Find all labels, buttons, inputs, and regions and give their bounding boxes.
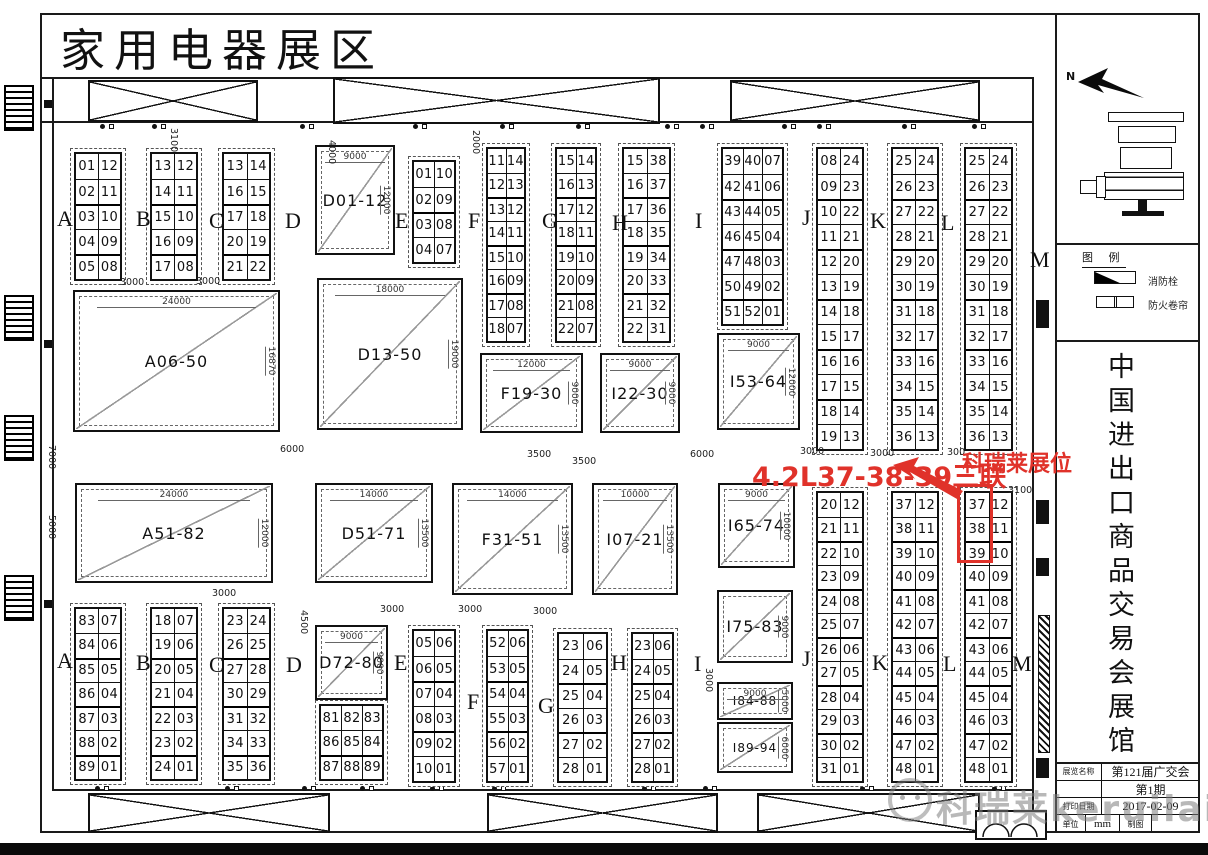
booth-cell: 09 bbox=[818, 175, 840, 199]
booth-row: 868584 bbox=[321, 730, 382, 754]
fire-hydrant-marker bbox=[302, 786, 307, 791]
booth-row: 0506 bbox=[414, 631, 454, 656]
booth-cell: 03 bbox=[989, 710, 1012, 733]
booth-cell: 01 bbox=[915, 758, 937, 781]
north-label: N bbox=[1066, 70, 1075, 83]
booth-cell: 01 bbox=[508, 757, 528, 781]
fire-hydrant-marker bbox=[225, 786, 230, 791]
booth-cell: 09 bbox=[506, 270, 524, 293]
booth-cell: 42 bbox=[966, 614, 989, 637]
booth-cell: 05 bbox=[174, 660, 196, 682]
dimension-label: 4500 bbox=[298, 610, 309, 634]
dimension-label: 12000 bbox=[258, 519, 269, 548]
booth-cell: 07 bbox=[506, 318, 524, 341]
booth-cell: 01 bbox=[414, 162, 434, 187]
booth-grid: 3712381139104009410842074306440545044603… bbox=[891, 491, 939, 783]
booth-cell: 21 bbox=[624, 295, 647, 317]
booth-cell: 46 bbox=[723, 225, 743, 249]
booth-row: 0110 bbox=[414, 162, 454, 187]
booth-row: 1708 bbox=[488, 293, 524, 317]
booth-cell: 03 bbox=[653, 709, 673, 733]
booth-cell: 01 bbox=[174, 757, 196, 779]
booth-row: 0605 bbox=[414, 656, 454, 681]
booth-row: 2903 bbox=[818, 709, 862, 733]
booth-cell: 48 bbox=[743, 251, 763, 274]
booth-row: 2705 bbox=[818, 661, 862, 685]
booth-grid: 230624052504260327022801 bbox=[557, 632, 608, 783]
fire-hydrant-marker bbox=[972, 124, 977, 129]
booth-cell: 20 bbox=[557, 270, 576, 293]
booth-cell: 22 bbox=[989, 201, 1012, 224]
booth-row: 1314 bbox=[224, 154, 269, 179]
aisle-letter: C bbox=[209, 652, 224, 678]
wall-marker bbox=[869, 786, 874, 791]
booth-cell: 14 bbox=[247, 154, 270, 179]
booth-cell: 34 bbox=[893, 375, 915, 399]
booth-cell: 20 bbox=[840, 251, 862, 274]
booth-cell: 10 bbox=[840, 543, 862, 565]
dimension-label: 24000 bbox=[98, 490, 249, 501]
booth-cell: 13 bbox=[818, 275, 840, 299]
booth-cell: 26 bbox=[818, 639, 840, 661]
aisle-letter: C bbox=[209, 208, 224, 234]
wall-marker bbox=[309, 124, 314, 129]
booth-row: 4009 bbox=[893, 565, 937, 589]
booth-row: 1708 bbox=[152, 254, 196, 279]
booth-row: 2108 bbox=[557, 293, 595, 317]
booth-grid: 520653055404550356025701 bbox=[486, 629, 529, 783]
booth-row: 1615 bbox=[224, 179, 269, 204]
booth-cell: 44 bbox=[743, 201, 763, 224]
booth-row: 1510 bbox=[488, 245, 524, 269]
wall-marker bbox=[585, 124, 590, 129]
booth-cell: 16 bbox=[818, 351, 840, 374]
aisle-letter: G bbox=[538, 693, 554, 719]
truss-box bbox=[88, 793, 330, 833]
booth-cell: 24 bbox=[818, 591, 840, 613]
booth-grid: 0824092310221121122013191418151716161715… bbox=[816, 147, 864, 451]
booth-cell: 13 bbox=[506, 174, 524, 197]
booth-cell: 02 bbox=[762, 275, 782, 299]
dimension-label: 10000 bbox=[603, 490, 667, 501]
booth-cell: 05 bbox=[989, 662, 1012, 685]
booth-cell: 10 bbox=[98, 206, 120, 229]
booth-cell: 38 bbox=[893, 518, 915, 541]
booth-row: 8604 bbox=[76, 682, 120, 706]
booth-cell: 47 bbox=[966, 735, 989, 757]
booth-cell: 12 bbox=[576, 199, 595, 221]
booth-cell: 24 bbox=[915, 149, 937, 174]
booth-column: 3712381139104009410842074306440545044603… bbox=[887, 487, 943, 787]
booth-row: 1514 bbox=[557, 149, 595, 173]
booth-cell: 07 bbox=[174, 609, 196, 633]
booth-cell: 25 bbox=[633, 685, 653, 708]
booth-cell: 44 bbox=[966, 662, 989, 685]
booth-row: 3217 bbox=[893, 324, 937, 349]
dimension-label: 3000 bbox=[533, 606, 557, 617]
booth-cell: 02 bbox=[840, 735, 862, 757]
booth-cell: 18 bbox=[488, 318, 506, 341]
booth-row: 0310 bbox=[76, 204, 120, 229]
booth-cell: 05 bbox=[653, 660, 673, 684]
wall-symbol bbox=[44, 100, 52, 108]
booth-cell: 04 bbox=[174, 683, 196, 706]
booth-cell: 40 bbox=[966, 566, 989, 589]
booth-grid: 01120211031004090508 bbox=[74, 152, 122, 281]
booth-row: 1807 bbox=[152, 609, 196, 633]
booth-cell: 27 bbox=[559, 734, 583, 757]
dimension-label: 2000 bbox=[470, 130, 481, 154]
booth-cell: 46 bbox=[893, 710, 915, 733]
booth-cell: 12 bbox=[840, 493, 862, 517]
fire-hydrant-marker bbox=[300, 124, 305, 129]
booth-row: 1718 bbox=[224, 204, 269, 229]
booth-cell: 07 bbox=[414, 683, 434, 706]
booth-cell: 19 bbox=[840, 275, 862, 299]
booth-row: 3118 bbox=[966, 299, 1011, 324]
dimension-label: 5000 bbox=[778, 690, 789, 713]
booth-row: 4108 bbox=[966, 589, 1011, 613]
booth-cell: 20 bbox=[152, 660, 174, 682]
aisle-letter: A bbox=[57, 206, 73, 232]
booth-cell: 21 bbox=[818, 518, 840, 541]
booth-cell: 10 bbox=[915, 543, 937, 565]
wall-symbol bbox=[1036, 558, 1049, 576]
booth-cell: 24 bbox=[559, 660, 583, 684]
booth-cell: 14 bbox=[915, 401, 937, 424]
booth-row: 2306 bbox=[633, 634, 672, 659]
booth-cell: 24 bbox=[989, 149, 1012, 174]
booth-cell: 23 bbox=[915, 175, 937, 199]
booth-cell: 36 bbox=[893, 425, 915, 449]
booth-cell: 32 bbox=[247, 708, 270, 730]
booth-cell: 21 bbox=[915, 225, 937, 249]
booth-row: 2019 bbox=[224, 229, 269, 254]
booth-column: 520653055404550356025701 bbox=[482, 625, 533, 787]
booth-cell: 03 bbox=[174, 708, 196, 730]
booth-row: 0112 bbox=[76, 154, 120, 179]
booth-column: 11141213131214111510160917081807 bbox=[482, 143, 530, 347]
booth-row: 474803 bbox=[723, 249, 782, 274]
booth-cell: 01 bbox=[653, 758, 673, 782]
aisle-letter: B bbox=[136, 206, 151, 232]
dimension-label: 13500 bbox=[418, 519, 429, 548]
booth-row: 4009 bbox=[966, 565, 1011, 589]
booth-cell: 21 bbox=[840, 225, 862, 249]
booth-row: 2324 bbox=[224, 609, 269, 633]
booth-row: 0211 bbox=[76, 179, 120, 204]
booth-cell: 19 bbox=[557, 247, 576, 269]
booth-row: 464504 bbox=[723, 224, 782, 249]
booth-cell: 14 bbox=[152, 180, 174, 204]
booth-cell: 43 bbox=[723, 201, 743, 224]
fire-hydrant-marker bbox=[500, 124, 505, 129]
booth-cell: 28 bbox=[966, 225, 989, 249]
booth-row: 4306 bbox=[893, 637, 937, 661]
booth-cell: 02 bbox=[98, 731, 120, 754]
wall-marker bbox=[369, 786, 374, 791]
booth-grid: 050606050704080309021001 bbox=[412, 629, 456, 783]
booth-cell: 19 bbox=[624, 247, 647, 269]
booth-cell: 11 bbox=[915, 518, 937, 541]
truss-box bbox=[88, 80, 258, 122]
booth-row: 4801 bbox=[966, 757, 1011, 781]
fire-hydrant-marker bbox=[100, 124, 105, 129]
booth-cell: 18 bbox=[152, 609, 174, 633]
booth-cell: 08 bbox=[818, 149, 840, 174]
booth-cell: 29 bbox=[966, 251, 989, 274]
booth-row: 2920 bbox=[893, 249, 937, 274]
booth-cell: 27 bbox=[224, 660, 247, 682]
wall-marker bbox=[674, 124, 679, 129]
legend-title: 图 例 bbox=[1082, 249, 1126, 268]
dimension-label: 13500 bbox=[558, 525, 569, 554]
booth-row: 4405 bbox=[893, 661, 937, 685]
booth-row: 1418 bbox=[818, 299, 862, 324]
booth-row: 8802 bbox=[76, 730, 120, 754]
aisle-letter: M bbox=[1030, 247, 1050, 273]
wall-line bbox=[40, 13, 1200, 15]
booth-cell: 11 bbox=[840, 518, 862, 541]
booth-cell: 26 bbox=[966, 175, 989, 199]
booth-row: 1609 bbox=[488, 269, 524, 293]
truss-box bbox=[333, 77, 660, 124]
booth-cell: 25 bbox=[966, 149, 989, 174]
dimension-label: 19000 bbox=[448, 340, 459, 369]
booth-cell: 06 bbox=[508, 631, 528, 656]
booth-cell: 06 bbox=[840, 639, 862, 661]
fire-hydrant-marker bbox=[152, 124, 157, 129]
booth-cell: 31 bbox=[966, 301, 989, 324]
fire-hydrant-marker bbox=[817, 124, 822, 129]
booth-cell: 17 bbox=[224, 206, 247, 229]
booth-cell: 02 bbox=[508, 733, 528, 756]
booth-row: 1910 bbox=[557, 245, 595, 269]
booth-row: 2104 bbox=[152, 682, 196, 706]
booth-grid: 11141213131214111510160917081807 bbox=[486, 147, 526, 343]
booth-cell: 09 bbox=[414, 733, 434, 756]
booth-row: 3536 bbox=[224, 755, 269, 779]
booth-cell: 04 bbox=[98, 683, 120, 706]
booth-column: 01120211031004090508 bbox=[70, 148, 126, 285]
booth-cell: 26 bbox=[559, 709, 583, 733]
booth-row: 1510 bbox=[152, 204, 196, 229]
booth-row: 424106 bbox=[723, 174, 782, 199]
exhibit-block: I07-211000013500 bbox=[592, 483, 678, 595]
booth-cell: 88 bbox=[76, 731, 98, 754]
booth-row: 2728 bbox=[224, 658, 269, 682]
wall-line bbox=[40, 13, 42, 833]
dimension-label: 6000 bbox=[690, 449, 714, 460]
booth-row: 2401 bbox=[152, 755, 196, 779]
aisle-letter: D bbox=[286, 652, 302, 678]
booth-cell: 23 bbox=[224, 609, 247, 633]
exhibit-block: D51-711400013500 bbox=[315, 483, 433, 583]
booth-row: 1538 bbox=[624, 149, 669, 173]
booth-cell: 03 bbox=[840, 710, 862, 733]
booth-cell: 15 bbox=[557, 149, 576, 173]
booth-cell: 07 bbox=[989, 614, 1012, 637]
booth-row: 2623 bbox=[893, 174, 937, 199]
booth-cell: 17 bbox=[818, 375, 840, 399]
booth-row: 3910 bbox=[893, 541, 937, 565]
booth-cell: 09 bbox=[434, 188, 454, 212]
dimension-label: 24000 bbox=[97, 297, 255, 308]
aisle-letter: K bbox=[870, 208, 886, 234]
booth-column: 13141615171820192122 bbox=[218, 148, 275, 285]
booth-cell: 46 bbox=[966, 710, 989, 733]
booth-row: 3029 bbox=[224, 682, 269, 706]
booth-grid: 15381637173618351934203321322231 bbox=[622, 147, 671, 343]
booth-cell: 14 bbox=[576, 149, 595, 173]
dimension-label: 3100 bbox=[1008, 485, 1032, 496]
dimension-label: 6000 bbox=[778, 736, 789, 759]
booth-grid: 13121411151016091708 bbox=[150, 152, 198, 281]
fire-hydrant-marker bbox=[782, 124, 787, 129]
booth-cell: 06 bbox=[915, 639, 937, 661]
booth-cell: 19 bbox=[152, 634, 174, 657]
wall-marker bbox=[712, 786, 717, 791]
booth-cell: 10 bbox=[506, 247, 524, 269]
aisle-letter: D bbox=[285, 208, 301, 234]
booth-cell: 07 bbox=[576, 318, 595, 341]
dimension-label: 13500 bbox=[663, 525, 674, 554]
booth-cell: 26 bbox=[633, 709, 653, 733]
booth-cell: 06 bbox=[989, 639, 1012, 661]
booth-row: 2309 bbox=[818, 565, 862, 589]
booth-cell: 20 bbox=[915, 251, 937, 274]
booth-cell: 07 bbox=[762, 149, 782, 174]
wall-marker bbox=[709, 124, 714, 129]
booth-cell: 28 bbox=[559, 758, 583, 782]
booth-cell: 05 bbox=[583, 660, 607, 684]
booth-row: 1715 bbox=[818, 374, 862, 399]
booth-row: 2210 bbox=[818, 541, 862, 565]
booth-row: 2203 bbox=[152, 706, 196, 730]
booth-cell: 16 bbox=[915, 351, 937, 374]
booth-cell: 09 bbox=[989, 566, 1012, 589]
booth-cell: 10 bbox=[818, 201, 840, 224]
booth-cell: 02 bbox=[915, 735, 937, 757]
booth-cell: 04 bbox=[76, 230, 98, 254]
booth-cell: 28 bbox=[893, 225, 915, 249]
booth-column: 2324262527283029313234333536 bbox=[218, 603, 275, 785]
booth-column: 230624052504260327022801 bbox=[553, 628, 612, 787]
booth-row: 4603 bbox=[893, 709, 937, 733]
aisle-letter: J bbox=[802, 646, 811, 672]
booth-row: 1114 bbox=[488, 149, 524, 173]
booth-cell: 06 bbox=[414, 657, 434, 681]
fire-shutter-icon bbox=[1096, 296, 1134, 308]
booth-cell: 18 bbox=[818, 401, 840, 424]
booth-row: 1906 bbox=[152, 633, 196, 657]
booth-cell: 09 bbox=[174, 230, 196, 254]
booth-cell: 03 bbox=[762, 251, 782, 274]
booth-cell: 35 bbox=[647, 222, 670, 245]
booth-row: 8505 bbox=[76, 658, 120, 682]
wall-structure bbox=[4, 85, 34, 131]
booth-cell: 34 bbox=[224, 731, 247, 754]
booth-cell: 30 bbox=[818, 735, 840, 757]
booth-row: 1811 bbox=[557, 221, 595, 245]
booth-cell: 09 bbox=[576, 270, 595, 293]
booth-row: 5404 bbox=[488, 681, 527, 706]
exhibit-block: F19-30120009000 bbox=[480, 353, 583, 433]
booth-cell: 30 bbox=[224, 683, 247, 706]
booth-row: 8901 bbox=[76, 755, 120, 779]
booth-grid: 2524262327222821292030193118321733163415… bbox=[891, 147, 939, 451]
booth-cell: 56 bbox=[488, 733, 508, 756]
booth-row: 3514 bbox=[966, 399, 1011, 424]
booth-cell: 06 bbox=[98, 634, 120, 657]
north-arrow-icon bbox=[1078, 68, 1150, 102]
booth-row: 1121 bbox=[818, 224, 862, 249]
booth-cell: 10 bbox=[434, 162, 454, 187]
booth-cell: 26 bbox=[224, 634, 247, 657]
booth-row: 3118 bbox=[893, 299, 937, 324]
booth-cell: 11 bbox=[174, 180, 196, 204]
booth-row: 1411 bbox=[152, 179, 196, 204]
wall-line bbox=[52, 789, 1032, 791]
booth-row: 3101 bbox=[818, 757, 862, 781]
aisle-letter: F bbox=[467, 689, 479, 715]
booth-cell: 57 bbox=[488, 757, 508, 781]
booth-cell: 16 bbox=[840, 351, 862, 374]
exhibit-block: D72-8090009000 bbox=[315, 625, 388, 700]
wall-marker bbox=[981, 124, 986, 129]
booth-cell: 12 bbox=[98, 154, 120, 179]
fire-hydrant-marker bbox=[576, 124, 581, 129]
booth-cell: 02 bbox=[76, 180, 98, 204]
booth-row: 5305 bbox=[488, 656, 527, 681]
booth-cell: 54 bbox=[488, 683, 508, 706]
booth-grid: 13141615171820192122 bbox=[222, 152, 271, 281]
booth-cell: 29 bbox=[247, 683, 270, 706]
booth-row: 2009 bbox=[557, 269, 595, 293]
floor-plan: 家用电器展区 4.2L37-38-39三联 科瑞莱展位 N 图 例 消防栓 防火… bbox=[0, 0, 1208, 855]
wall-marker bbox=[791, 124, 796, 129]
booth-cell: 43 bbox=[966, 639, 989, 661]
booth-cell: 35 bbox=[224, 757, 247, 779]
booth-column: 3940074241064344054645044748035049025152… bbox=[717, 143, 788, 330]
booth-grid: 3940074241064344054645044748035049025152… bbox=[721, 147, 784, 326]
booth-cell: 33 bbox=[647, 270, 670, 293]
booth-cell: 05 bbox=[414, 631, 434, 656]
booth-row: 3217 bbox=[966, 324, 1011, 349]
booth-row: 3613 bbox=[893, 424, 937, 449]
booth-cell: 45 bbox=[893, 687, 915, 709]
booth-row: 504902 bbox=[723, 274, 782, 299]
dock-hatch bbox=[1038, 615, 1050, 753]
fire-hydrant-marker bbox=[360, 786, 365, 791]
booth-cell: 32 bbox=[647, 295, 670, 317]
booth-row: 3514 bbox=[893, 399, 937, 424]
fire-hydrant-marker bbox=[700, 124, 705, 129]
booth-row: 3132 bbox=[224, 706, 269, 730]
booth-row: 1913 bbox=[818, 424, 862, 449]
booth-row: 1613 bbox=[557, 173, 595, 197]
booth-row: 1517 bbox=[818, 324, 862, 349]
booth-cell: 02 bbox=[414, 188, 434, 212]
booth-cell: 23 bbox=[818, 566, 840, 589]
booth-cell: 26 bbox=[893, 175, 915, 199]
booth-cell: 31 bbox=[647, 318, 670, 341]
booth-row: 878889 bbox=[321, 755, 382, 779]
booth-cell: 13 bbox=[224, 154, 247, 179]
exhibit-block: A51-822400012000 bbox=[75, 483, 273, 583]
booth-cell: 11 bbox=[818, 225, 840, 249]
exhibit-block: D13-501800019000 bbox=[317, 278, 463, 430]
